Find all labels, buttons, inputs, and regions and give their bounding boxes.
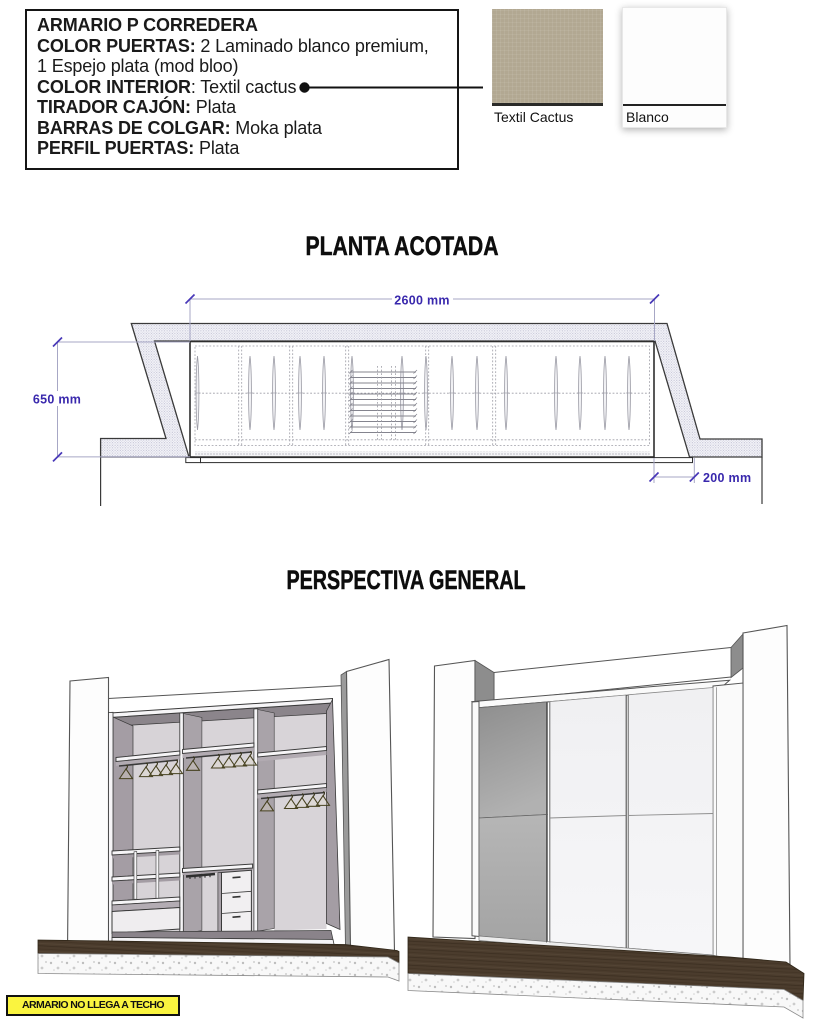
svg-text:2600 mm: 2600 mm [394, 294, 450, 308]
svg-text:200 mm: 200 mm [703, 471, 751, 485]
svg-text:650 mm: 650 mm [33, 393, 81, 407]
